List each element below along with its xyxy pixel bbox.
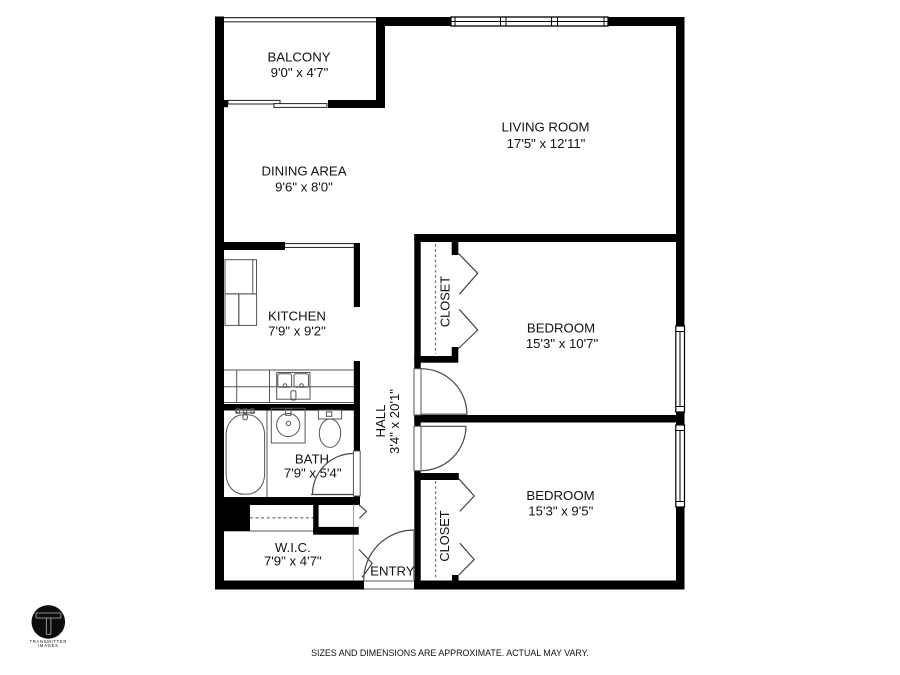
svg-text:15'3" x 10'7": 15'3" x 10'7" xyxy=(526,336,599,351)
svg-text:BEDROOM: BEDROOM xyxy=(527,321,595,336)
svg-text:BEDROOM: BEDROOM xyxy=(526,488,594,503)
svg-text:LIVING ROOM: LIVING ROOM xyxy=(502,120,590,135)
svg-text:7'9" x 9'2": 7'9" x 9'2" xyxy=(268,324,326,339)
svg-text:17'5" x 12'11": 17'5" x 12'11" xyxy=(507,136,586,151)
svg-text:SIZES AND DIMENSIONS ARE APPRO: SIZES AND DIMENSIONS ARE APPROXIMATE. AC… xyxy=(311,648,589,658)
svg-text:HALL: HALL xyxy=(373,405,388,438)
svg-text:BATH: BATH xyxy=(295,452,329,467)
svg-text:IMAGES: IMAGES xyxy=(38,643,59,648)
svg-text:7'9" x 4'7": 7'9" x 4'7" xyxy=(264,554,322,569)
svg-text:ENTRY: ENTRY xyxy=(370,564,415,579)
svg-text:9'0" x 4'7": 9'0" x 4'7" xyxy=(271,65,329,80)
svg-text:7'9" x 5'4": 7'9" x 5'4" xyxy=(284,466,342,481)
svg-text:BALCONY: BALCONY xyxy=(267,50,330,65)
svg-text:9'6" x 8'0": 9'6" x 8'0" xyxy=(275,180,333,195)
svg-text:15'3" x 9'5": 15'3" x 9'5" xyxy=(528,504,593,519)
svg-text:CLOSET: CLOSET xyxy=(437,510,452,561)
svg-text:DINING AREA: DINING AREA xyxy=(261,164,346,179)
svg-text:3'4" x 20'1": 3'4" x 20'1" xyxy=(387,389,402,454)
svg-text:CLOSET: CLOSET xyxy=(438,276,453,327)
svg-text:KITCHEN: KITCHEN xyxy=(268,308,326,323)
